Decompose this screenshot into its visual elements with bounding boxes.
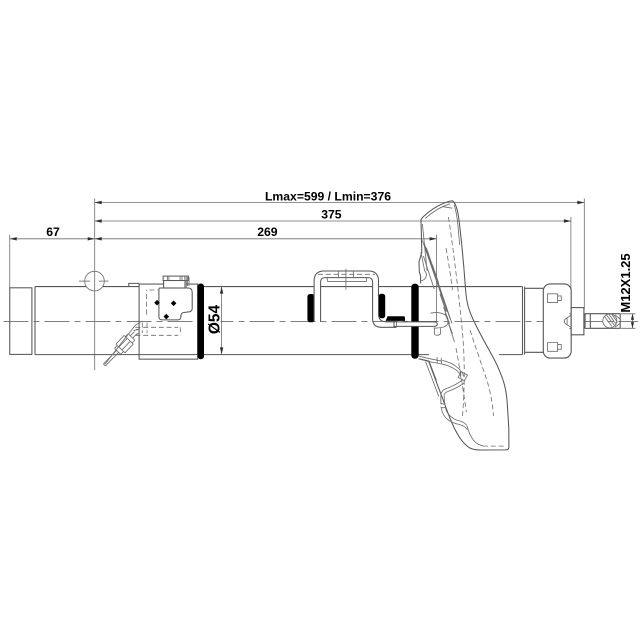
svg-text:375: 375 <box>321 208 342 222</box>
svg-text:Lmax=599 / Lmin=376: Lmax=599 / Lmin=376 <box>265 190 391 204</box>
svg-text:Ø54: Ø54 <box>207 304 224 334</box>
svg-text:67: 67 <box>46 225 60 239</box>
svg-text:M12X1.25: M12X1.25 <box>618 253 633 312</box>
svg-text:269: 269 <box>257 225 278 239</box>
